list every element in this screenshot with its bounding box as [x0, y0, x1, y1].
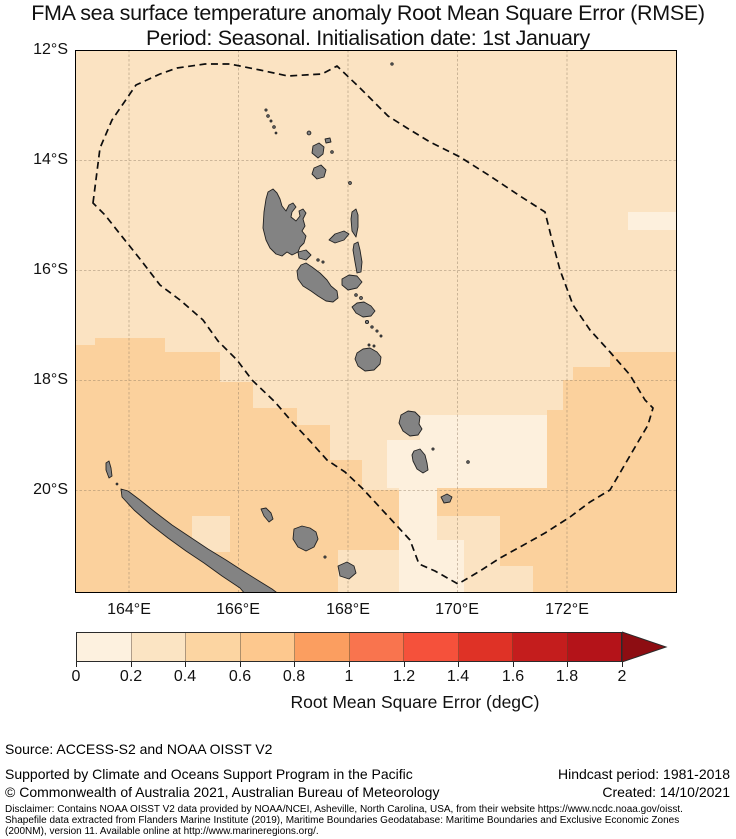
island-mota — [331, 151, 334, 154]
colorbar-title: Root Mean Square Error (degC) — [95, 692, 735, 713]
cb-tick-6 — [404, 662, 405, 667]
cb-label-16: 1.6 — [488, 668, 538, 686]
cb-label-02: 0.2 — [106, 668, 156, 686]
footer-disclaimer-line2: Shapefile data extracted from Flanders M… — [5, 815, 679, 826]
map-panel — [75, 50, 677, 593]
cb-label-1: 1 — [324, 668, 374, 686]
cb-tick-4 — [294, 662, 295, 667]
cb-tick-9 — [567, 662, 568, 667]
island-tongoa — [365, 320, 368, 323]
lon-tick-164e: 164°E — [97, 601, 161, 619]
island-paama — [355, 294, 358, 297]
colorbar-extend-arrow — [622, 630, 670, 664]
colorbar-seg-4 — [295, 633, 350, 661]
colorbar-seg-9 — [568, 633, 622, 661]
island-aniwa — [432, 448, 434, 450]
colorbar-seg-0 — [77, 633, 132, 661]
island-torres-5 — [275, 132, 277, 134]
cb-tick-1 — [131, 662, 132, 667]
footer-disclaimer-line1: Disclaimer: Contains NOAA OISST V2 data … — [5, 804, 683, 815]
cb-tick-5 — [349, 662, 350, 667]
colorbar-seg-7 — [459, 633, 514, 661]
lat-tick-18s: 18°S — [20, 370, 68, 390]
island-tongariki — [371, 326, 373, 328]
map-canvas — [75, 50, 677, 593]
rmse-patch-light-4 — [399, 540, 464, 593]
island-tiga — [324, 556, 326, 558]
island-mere-lava — [349, 182, 352, 185]
lat-tick-20s: 20°S — [20, 480, 68, 500]
cb-label-18: 1.8 — [542, 668, 592, 686]
cb-label-12: 1.2 — [379, 668, 429, 686]
footer-copyright: © Commonwealth of Australia 2021, Austra… — [5, 784, 439, 800]
cb-tick-0 — [76, 662, 77, 667]
colorbar-seg-8 — [513, 633, 568, 661]
cb-tick-10 — [622, 662, 623, 667]
colorbar-seg-3 — [241, 633, 296, 661]
lat-tick-16s: 16°S — [20, 260, 68, 280]
colorbar-seg-5 — [350, 633, 405, 661]
island-torres-2 — [267, 115, 270, 118]
cb-label-08: 0.8 — [269, 668, 319, 686]
cb-label-0: 0 — [51, 668, 101, 686]
cb-label-04: 0.4 — [160, 668, 210, 686]
island-torres-4 — [273, 126, 276, 129]
footer-created-date: Created: 14/10/2021 — [602, 784, 730, 800]
rmse-patch-light-5 — [628, 212, 677, 230]
rmse-patch-light-2 — [387, 440, 547, 488]
figure-title: FMA sea surface temperature anomaly Root… — [0, 1, 736, 26]
rmse-patch-light-1 — [420, 415, 547, 440]
colorbar-seg-2 — [186, 633, 241, 661]
cb-label-14: 1.4 — [433, 668, 483, 686]
lon-tick-166e: 166°E — [206, 601, 270, 619]
cb-tick-8 — [513, 662, 514, 667]
colorbar-seg-6 — [404, 633, 459, 661]
islet-nguna — [368, 344, 370, 346]
islet-shepherd — [380, 335, 382, 337]
island-futuna — [467, 461, 470, 464]
island-lopevi — [360, 297, 363, 300]
lon-tick-168e: 168°E — [316, 601, 380, 619]
figure-subtitle: Period: Seasonal. Initialisation date: 1… — [0, 26, 736, 51]
islet-uripiv — [322, 261, 324, 263]
islet-nc-north — [116, 483, 118, 485]
lat-tick-14s: 14°S — [20, 150, 68, 170]
cb-tick-3 — [240, 662, 241, 667]
colorbar-seg-1 — [132, 633, 187, 661]
footer-disclaimer-line3: (200NM), version 11. Available online at… — [5, 826, 319, 837]
cb-tick-2 — [185, 662, 186, 667]
cb-tick-7 — [458, 662, 459, 667]
footer-supported: Supported by Climate and Oceans Support … — [5, 766, 413, 782]
islet-emao — [373, 345, 375, 347]
island-emae — [376, 330, 378, 332]
cb-label-06: 0.6 — [215, 668, 265, 686]
footer-source: Source: ACCESS-S2 and NOAA OISST V2 — [5, 741, 272, 757]
islet-norsup — [317, 259, 319, 261]
colorbar — [76, 632, 622, 662]
footer-hindcast-period: Hindcast period: 1981-2018 — [558, 766, 730, 782]
island-torres-1 — [265, 109, 267, 111]
island-torres-3 — [270, 120, 272, 122]
island-mota-lava — [325, 138, 331, 143]
lon-tick-170e: 170°E — [425, 601, 489, 619]
rmse-patch-light-3 — [399, 488, 437, 540]
cb-label-2: 2 — [597, 668, 647, 686]
island-ureparapara — [307, 131, 311, 135]
lon-tick-172e: 172°E — [535, 601, 599, 619]
figure: FMA sea surface temperature anomaly Root… — [0, 0, 736, 839]
lat-tick-12s: 12°S — [20, 40, 68, 60]
islet-northeast — [391, 63, 393, 65]
